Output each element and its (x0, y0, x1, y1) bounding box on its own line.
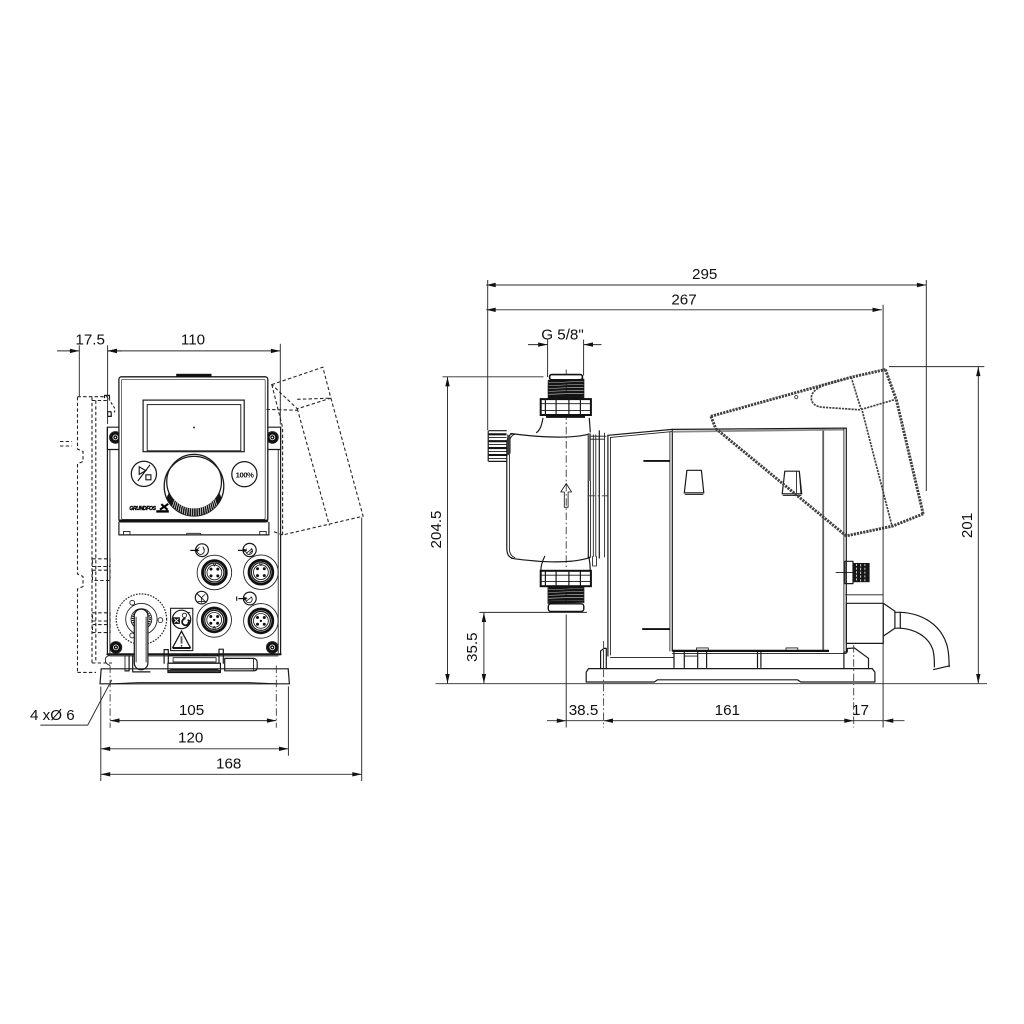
svg-text:204.5: 204.5 (428, 510, 445, 548)
svg-text:267: 267 (671, 292, 696, 309)
svg-text:G 5/8": G 5/8" (541, 326, 584, 343)
svg-text:35.5: 35.5 (464, 632, 481, 662)
svg-text:295: 295 (692, 266, 717, 283)
svg-text:168: 168 (216, 755, 241, 772)
svg-text:105: 105 (179, 702, 204, 719)
svg-text:38.5: 38.5 (569, 702, 599, 719)
svg-text:17: 17 (852, 702, 869, 719)
svg-text:100%: 100% (236, 470, 254, 479)
svg-text:201: 201 (959, 513, 976, 538)
svg-text:GRUNDFOS: GRUNDFOS (129, 506, 156, 512)
svg-text:4 xØ 6: 4 xØ 6 (30, 707, 75, 724)
svg-text:161: 161 (715, 702, 740, 719)
svg-text:120: 120 (178, 730, 203, 747)
svg-text:17.5: 17.5 (75, 332, 105, 349)
svg-text:110: 110 (181, 332, 205, 349)
